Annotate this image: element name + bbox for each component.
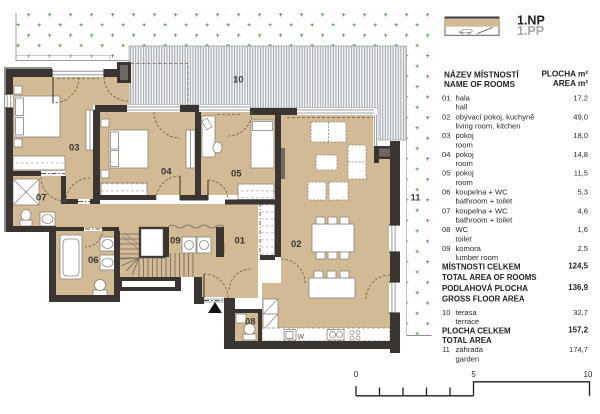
svg-text:PLOCHA CELKEM: PLOCHA CELKEM xyxy=(442,327,511,336)
svg-text:2,5: 2,5 xyxy=(577,244,588,253)
svg-text:124,5: 124,5 xyxy=(568,262,588,271)
svg-text:pokoj: pokoj xyxy=(456,169,474,178)
svg-text:komora: komora xyxy=(456,244,482,253)
svg-text:17,2: 17,2 xyxy=(573,94,588,103)
svg-text:02: 02 xyxy=(291,239,302,250)
svg-text:174,7: 174,7 xyxy=(569,345,588,354)
svg-text:terrace: terrace xyxy=(456,317,480,326)
svg-text:pokoj: pokoj xyxy=(456,131,474,140)
svg-text:4,6: 4,6 xyxy=(577,206,588,215)
svg-text:11: 11 xyxy=(411,193,422,204)
svg-text:09: 09 xyxy=(442,244,450,253)
svg-text:32,7: 32,7 xyxy=(573,308,588,317)
svg-text:06: 06 xyxy=(442,188,450,197)
svg-text:04: 04 xyxy=(442,150,450,159)
svg-text:W: W xyxy=(298,334,305,341)
svg-text:18,0: 18,0 xyxy=(573,131,588,140)
svg-text:TOTAL AREA: TOTAL AREA xyxy=(442,336,492,345)
svg-text:08: 08 xyxy=(442,225,450,234)
svg-text:PLOCHA m²: PLOCHA m² xyxy=(541,70,588,79)
svg-text:MÍSTNOSTI CELKEM: MÍSTNOSTI CELKEM xyxy=(442,263,521,272)
svg-text:0: 0 xyxy=(354,370,359,379)
svg-text:lumber room: lumber room xyxy=(456,253,499,262)
svg-text:NÁZEV MÍSTNOSTÍ: NÁZEV MÍSTNOSTÍ xyxy=(444,70,519,80)
svg-text:koupelna + WC: koupelna + WC xyxy=(456,206,509,215)
svg-text:157,2: 157,2 xyxy=(568,326,588,335)
svg-text:05: 05 xyxy=(442,169,450,178)
svg-text:08: 08 xyxy=(245,317,256,328)
svg-text:toilet: toilet xyxy=(456,234,473,243)
svg-text:room: room xyxy=(456,140,473,149)
svg-text:01: 01 xyxy=(442,94,450,103)
svg-text:10: 10 xyxy=(584,370,593,379)
svg-text:hall: hall xyxy=(456,103,468,112)
svg-text:11: 11 xyxy=(442,345,450,354)
svg-text:03: 03 xyxy=(69,143,80,154)
svg-text:5,3: 5,3 xyxy=(577,188,588,197)
svg-text:06: 06 xyxy=(88,255,99,266)
svg-text:11,5: 11,5 xyxy=(574,169,588,178)
svg-text:07: 07 xyxy=(442,206,450,215)
svg-text:zahrada: zahrada xyxy=(456,345,484,354)
svg-text:136,9: 136,9 xyxy=(568,283,588,292)
svg-text:09: 09 xyxy=(170,236,181,247)
svg-text:5: 5 xyxy=(471,370,476,379)
svg-text:hala: hala xyxy=(456,94,471,103)
svg-text:10: 10 xyxy=(233,75,244,86)
svg-text:pokoj: pokoj xyxy=(456,150,474,159)
svg-text:WC: WC xyxy=(456,225,469,234)
svg-text:05: 05 xyxy=(231,169,242,180)
svg-text:03: 03 xyxy=(442,131,450,140)
svg-text:bathroom + toilet: bathroom + toilet xyxy=(456,216,514,225)
svg-text:room: room xyxy=(456,178,473,187)
svg-text:02: 02 xyxy=(442,112,450,121)
svg-text:terasa: terasa xyxy=(456,308,478,317)
svg-text:NAME OF ROOMS: NAME OF ROOMS xyxy=(444,80,515,89)
svg-text:14,8: 14,8 xyxy=(573,150,588,159)
svg-text:living room, kitchen: living room, kitchen xyxy=(456,122,521,131)
svg-text:bathroom + toilet: bathroom + toilet xyxy=(456,197,514,206)
svg-text:obývací pokoj, kuchyně: obývací pokoj, kuchyně xyxy=(456,112,535,121)
svg-text:04: 04 xyxy=(161,167,172,178)
svg-text:garden: garden xyxy=(456,354,480,363)
svg-text:49,0: 49,0 xyxy=(573,112,588,121)
svg-text:TOTAL AREA OF ROOMS: TOTAL AREA OF ROOMS xyxy=(442,273,537,282)
svg-text:1.PP: 1.PP xyxy=(517,24,544,38)
svg-text:1,6: 1,6 xyxy=(577,225,588,234)
svg-text:room: room xyxy=(456,159,473,168)
svg-text:07: 07 xyxy=(36,193,47,204)
svg-text:AREA m²: AREA m² xyxy=(553,79,588,88)
svg-text:10: 10 xyxy=(442,308,450,317)
svg-text:PODLAHOVÁ PLOCHA: PODLAHOVÁ PLOCHA xyxy=(442,284,528,293)
svg-text:01: 01 xyxy=(235,236,246,247)
svg-text:GROSS FLOOR AREA: GROSS FLOOR AREA xyxy=(442,294,525,303)
svg-text:koupelna + WC: koupelna + WC xyxy=(456,188,509,197)
